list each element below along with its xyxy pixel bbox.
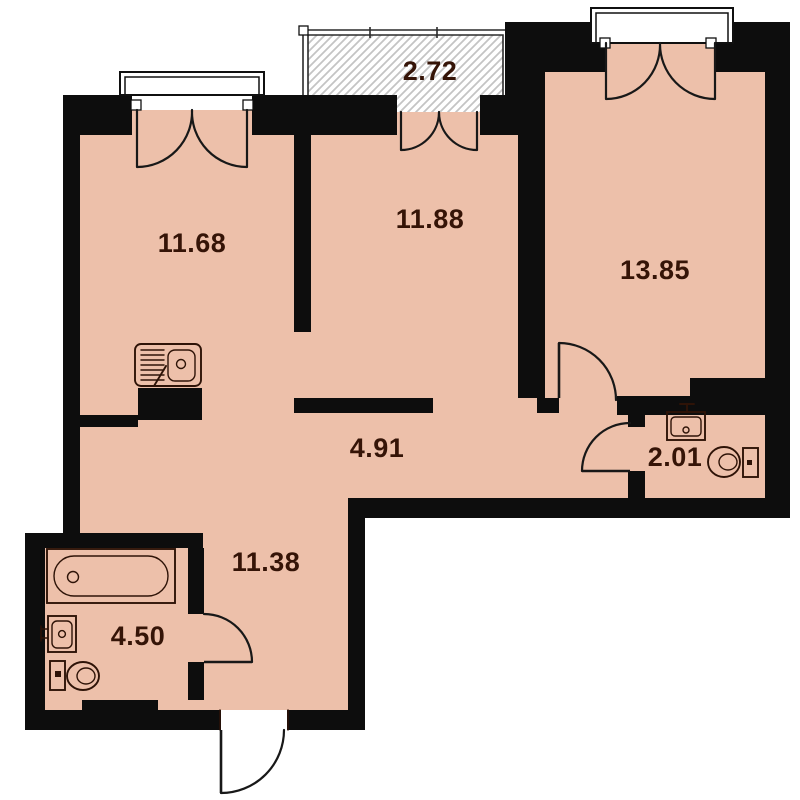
- area-label-balcony: 2.72: [403, 56, 458, 86]
- area-label-bedroom: 11.88: [396, 204, 465, 234]
- floor-plan-svg: 2.72 11.68 11.88 13.85 4.91 2.01 11.38 4…: [0, 0, 800, 800]
- floor-plan: 2.72 11.68 11.88 13.85 4.91 2.01 11.38 4…: [0, 0, 800, 800]
- area-label-corridor: 4.91: [350, 433, 405, 463]
- railing-post: [299, 26, 308, 35]
- area-label-bathroom: 4.50: [111, 621, 166, 651]
- entrance-door: [220, 710, 288, 793]
- area-label-kitchen-living: 11.68: [158, 228, 227, 258]
- area-label-living: 13.85: [620, 255, 690, 285]
- area-label-hall: 11.38: [232, 547, 301, 577]
- area-label-wc: 2.01: [648, 442, 703, 472]
